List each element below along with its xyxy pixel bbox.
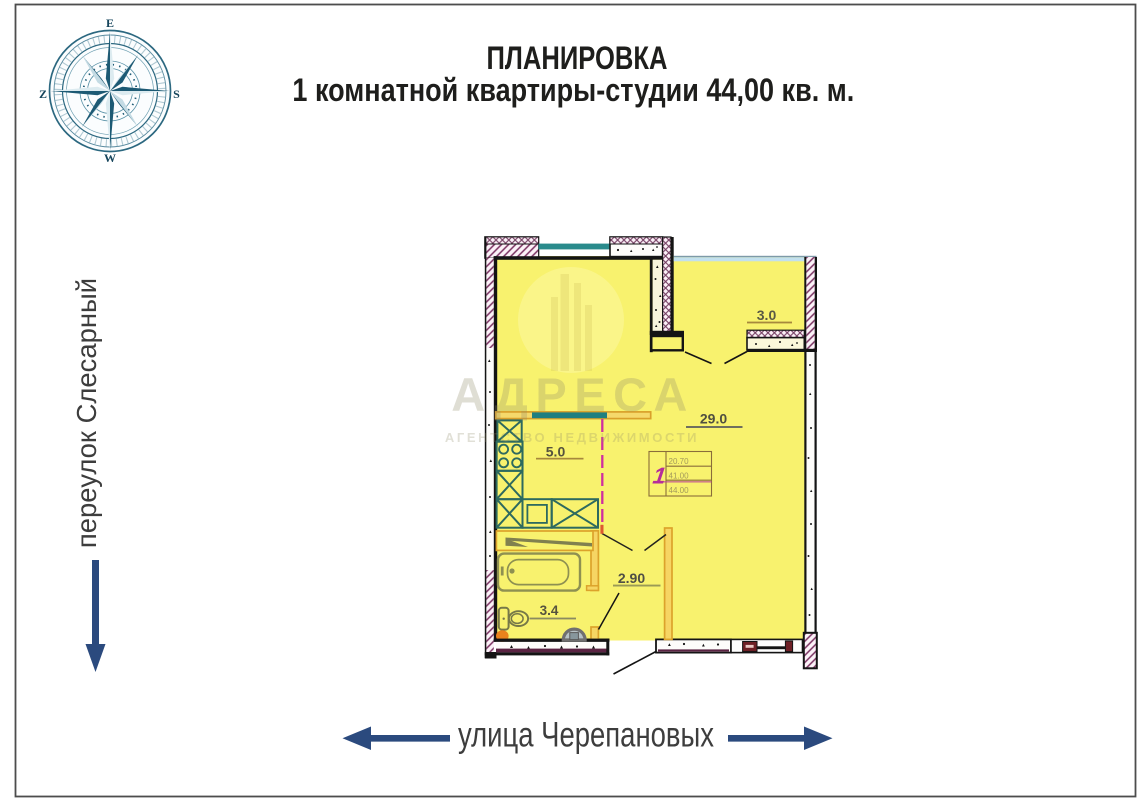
svg-text:1 комнатной квартиры-студии 44: 1 комнатной квартиры-студии 44,00 кв. м. — [292, 73, 854, 109]
svg-text:20.70: 20.70 — [669, 457, 690, 466]
svg-text:44.00: 44.00 — [669, 486, 690, 495]
svg-text:АДРЕСА: АДРЕСА — [451, 368, 695, 421]
svg-text:5.0: 5.0 — [546, 443, 566, 459]
svg-text:29.0: 29.0 — [700, 410, 727, 426]
svg-text:W: W — [104, 151, 116, 165]
svg-text:ПЛАНИРОВКА: ПЛАНИРОВКА — [487, 41, 668, 76]
svg-text:3.4: 3.4 — [540, 603, 559, 618]
svg-text:S: S — [173, 87, 180, 101]
svg-text:Z: Z — [39, 87, 47, 101]
svg-text:3.0: 3.0 — [757, 307, 777, 323]
svg-text:2.90: 2.90 — [618, 570, 645, 586]
svg-text:АГЕНТСТВО НЕДВИЖИМОСТИ: АГЕНТСТВО НЕДВИЖИМОСТИ — [445, 430, 699, 445]
svg-text:переулок Слесарный: переулок Слесарный — [71, 278, 102, 548]
svg-text:E: E — [106, 16, 114, 30]
svg-text:41.00: 41.00 — [669, 472, 690, 481]
svg-text:улица Черепановых: улица Черепановых — [458, 715, 714, 754]
